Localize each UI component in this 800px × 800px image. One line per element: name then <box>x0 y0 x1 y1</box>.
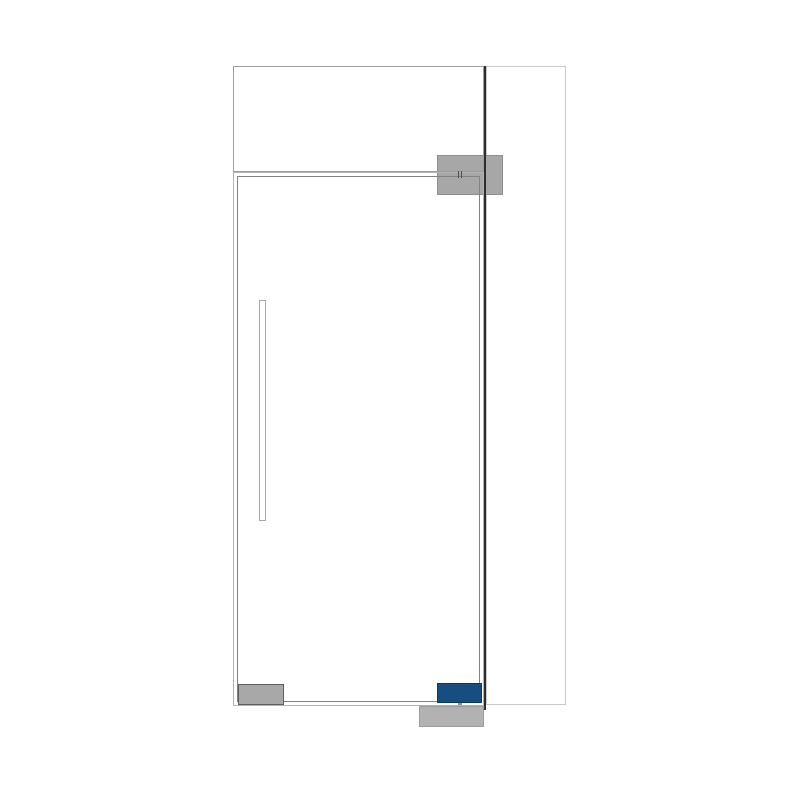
door-handle-bar[interactable] <box>259 300 266 521</box>
transom-panel <box>233 66 484 172</box>
pivot-axis-tick-left <box>458 171 459 178</box>
glass-door-fitting-diagram <box>0 0 800 800</box>
frame-divider-line <box>484 66 486 710</box>
bottom-pivot-fitting-selected[interactable] <box>437 683 482 703</box>
door-leaf <box>237 176 480 702</box>
pivot-axis-tick-right <box>461 171 462 178</box>
floor-spring-fitting[interactable] <box>419 706 484 727</box>
bottom-rail-fitting[interactable] <box>238 684 284 705</box>
